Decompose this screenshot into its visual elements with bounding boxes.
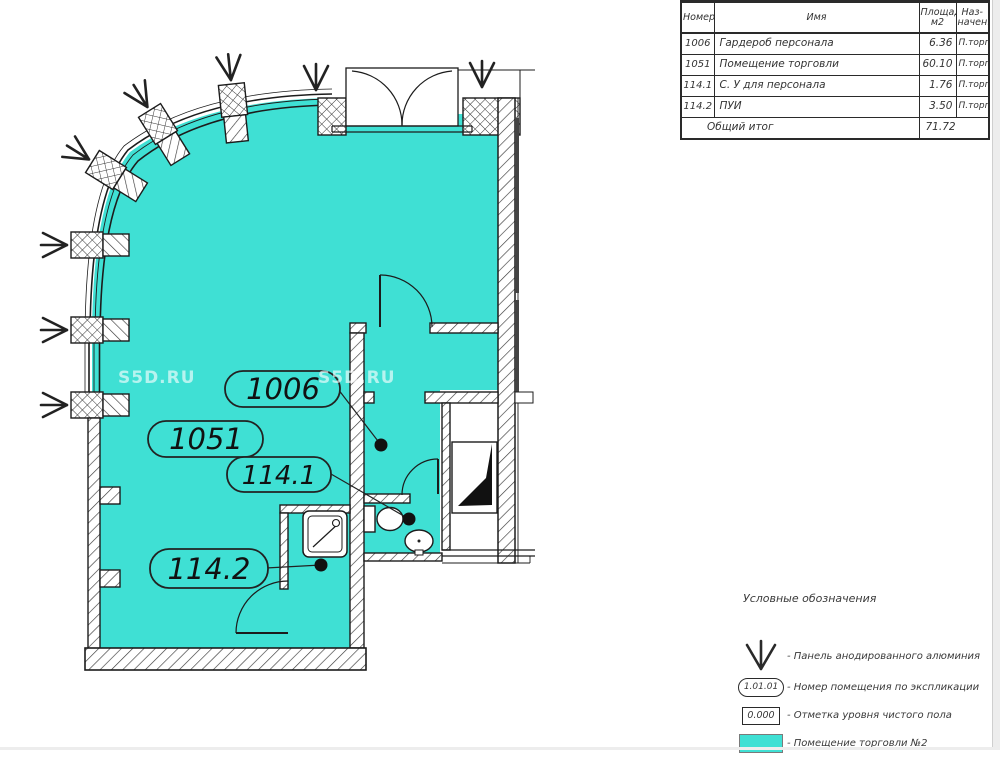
shower-tray xyxy=(303,511,347,557)
legend-item-label: - Отметка уровня чистого пола xyxy=(787,710,952,721)
legend-item-label: - Панель анодированного алюминия xyxy=(787,651,980,662)
legend-title: Условные обозначения xyxy=(735,592,1000,605)
legend-item: - Помещение торговли №2 xyxy=(735,730,1000,757)
image-edge-strip xyxy=(992,0,1000,750)
room-label-114-1: 114.1 xyxy=(227,457,331,492)
col-header-area: Площадь, м2 xyxy=(919,2,956,34)
legend-item: - Панель анодированного алюминия xyxy=(735,639,1000,673)
table-row: 114.2 ПУИ 3.50 П.торга xyxy=(681,97,989,118)
legend: Условные обозначения - Панель анодирован… xyxy=(735,592,1000,758)
facade-glazing-strip xyxy=(515,118,519,293)
room-label-1051: 1051 xyxy=(148,421,263,457)
table-total-row: Общий итог 71.72 xyxy=(681,118,989,140)
table-header-row: Номер Имя Площадь, м2 Наз- начен. xyxy=(681,2,989,34)
col-header-purpose: Наз- начен. xyxy=(956,2,989,34)
window-pier xyxy=(41,232,129,258)
explication-table: Номер Имя Площадь, м2 Наз- начен. 1006 Г… xyxy=(680,0,990,140)
toilet xyxy=(364,506,403,532)
trade-room-swatch xyxy=(739,734,783,753)
watermark-text: S5D.RU xyxy=(318,368,396,388)
col-header-number: Номер xyxy=(681,2,714,34)
room-label-114-2: 114.2 xyxy=(150,549,268,588)
svg-text:114.1: 114.1 xyxy=(242,461,316,491)
aluminum-panel-icon xyxy=(743,639,779,673)
svg-text:114.2: 114.2 xyxy=(167,552,250,586)
svg-text:1051: 1051 xyxy=(169,422,243,456)
bottom-wall xyxy=(85,648,366,670)
table-row: 1006 Гардероб персонала 6.36 П.торга xyxy=(681,33,989,55)
room-number-oval: 1.01.01 xyxy=(738,678,784,697)
table-row: 1051 Помещение торговли 60.10 П.торга xyxy=(681,55,989,76)
watermark-text: S5D.RU xyxy=(118,368,196,388)
total-label: Общий итог xyxy=(681,118,919,140)
window-pier xyxy=(41,317,129,343)
legend-item: 0.000 - Отметка уровня чистого пола xyxy=(735,702,1000,729)
outside-area xyxy=(362,556,536,680)
window-pier xyxy=(41,392,129,418)
facade-glazing-strip xyxy=(515,300,519,392)
svg-text:1006: 1006 xyxy=(246,372,320,406)
col-header-name: Имя xyxy=(714,2,919,34)
floor-level-box: 0.000 xyxy=(742,707,780,725)
legend-item-label: - Номер помещения по экспликации xyxy=(787,682,979,693)
table-row: 114.1 С. У для персонала 1.76 П.торга xyxy=(681,76,989,97)
legend-item: 1.01.01 - Номер помещения по экспликации xyxy=(735,674,1000,701)
total-area: 71.72 xyxy=(919,118,989,140)
